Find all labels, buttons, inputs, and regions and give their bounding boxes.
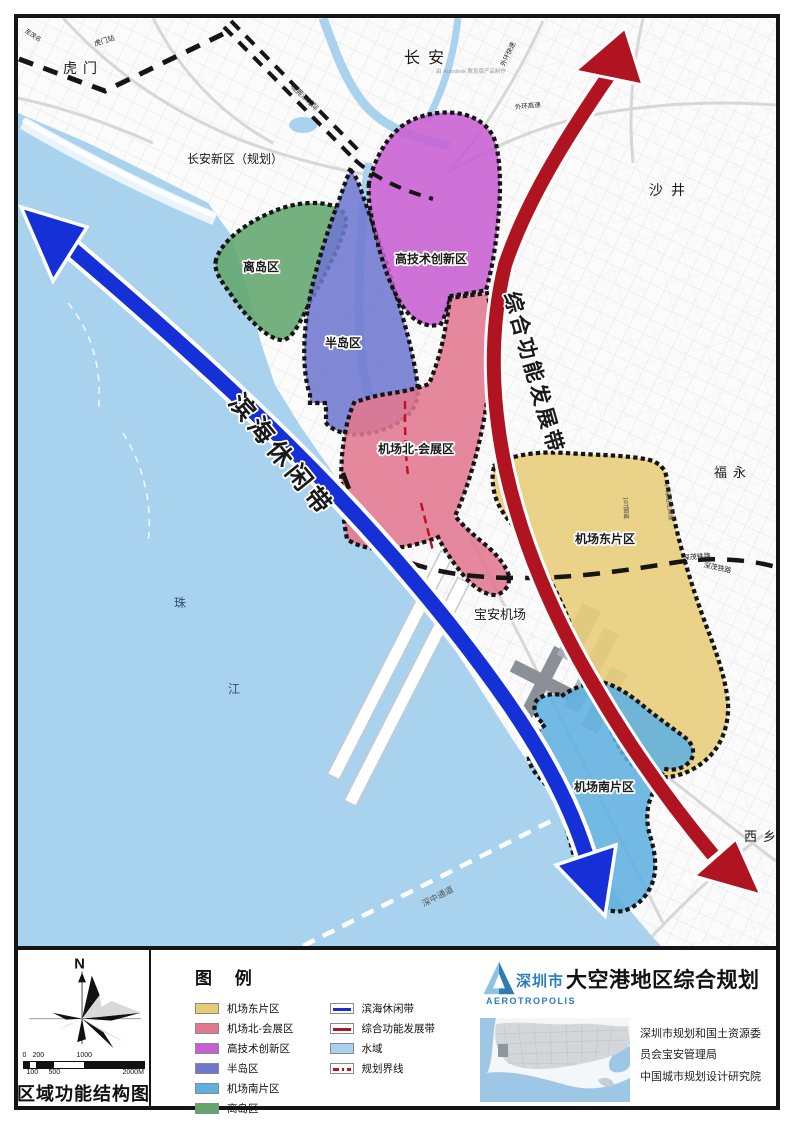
credits: 深圳市规划和国土资源委 员会宝安管理局 中国城市规划设计研究院	[640, 1018, 761, 1102]
logo-latin: AEROTROPOLIS	[486, 996, 576, 1006]
scale-tick: 2000M	[123, 1069, 144, 1076]
scale-tick: 100	[27, 1069, 39, 1076]
credit-line: 员会宝安管理局	[640, 1045, 761, 1066]
legend-line-column: 滨海休闲带综合功能发展带水域规划界线	[330, 1001, 436, 1116]
legend-swatch	[330, 1023, 354, 1034]
legend-label: 离岛区	[227, 1101, 259, 1116]
logo: 深圳市 AEROTROPOLIS 大空港地区综合规划	[480, 960, 776, 1012]
legend-item: 半岛区	[195, 1061, 294, 1076]
map-canvas: 长安由 Autodesk 教育版产品制作虎门虎门站至茂名穗莞深城际长安新区（规划…	[18, 18, 776, 946]
compass-rose: N	[17, 954, 150, 1050]
compass-petals	[53, 976, 141, 1048]
legend-item: 综合功能发展带	[330, 1021, 436, 1036]
inset-highlight-area	[498, 1044, 508, 1057]
legend-item: 机场北-会展区	[195, 1021, 294, 1036]
scale-tick: 1000	[77, 1052, 93, 1059]
legend-label: 规划界线	[362, 1061, 404, 1076]
legend-label: 机场南片区	[227, 1081, 280, 1096]
map-label-autodesk-note: 由 Autodesk 教育版产品制作	[436, 67, 506, 75]
legend-swatch	[330, 1043, 354, 1054]
aerotropolis-logo-icon	[482, 960, 516, 996]
legend-label: 半岛区	[227, 1061, 259, 1076]
map-label-baoan-airport: 宝安机场	[474, 607, 526, 622]
legend-swatch	[330, 1003, 354, 1014]
logo-city: 深圳市	[516, 970, 564, 991]
legend: 图 例 机场东片区机场北-会展区高技术创新区半岛区机场南片区离岛区 滨海休闲带综…	[151, 950, 480, 1106]
plan-sheet: 长安由 Autodesk 教育版产品制作虎门虎门站至茂名穗莞深城际长安新区（规划…	[14, 14, 780, 1110]
map-label-fuyong: 福永	[714, 465, 752, 480]
map-label-xixiang: 西乡	[744, 829, 776, 844]
legend-label: 机场北-会展区	[227, 1021, 294, 1036]
branding-block: 深圳市 AEROTROPOLIS 大空港地区综合规划	[480, 950, 776, 1106]
inset-map	[480, 1018, 630, 1102]
page: { "colors": { "water": "#a8d2ee", "land"…	[0, 0, 800, 1130]
logo-title: 大空港地区综合规划	[566, 964, 760, 994]
legend-label: 机场东片区	[227, 1001, 280, 1016]
map-label-zone-airport-south: 机场南片区	[574, 779, 634, 794]
map-label-zone-island: 离岛区	[243, 259, 279, 274]
map-label-zone-peninsula: 半岛区	[325, 335, 361, 350]
legend-swatch	[195, 1063, 219, 1074]
legend-swatch	[330, 1063, 354, 1074]
map-label-changan-new-area: 长安新区（规划）	[187, 151, 283, 166]
legend-swatch	[195, 1003, 219, 1014]
legend-item: 离岛区	[195, 1101, 294, 1116]
scale-bar-segments	[23, 1061, 145, 1069]
map-label-humen: 虎门	[63, 60, 103, 76]
legend-item: 高技术创新区	[195, 1041, 294, 1056]
map-label-zone-airport-east: 机场东片区	[575, 531, 635, 546]
map-label-shajing: 沙井	[649, 182, 693, 198]
legend-item: 机场东片区	[195, 1001, 294, 1016]
legend-swatch	[195, 1043, 219, 1054]
scale-tick: 500	[49, 1069, 61, 1076]
map-label-zone-hightech: 高技术创新区	[395, 251, 467, 266]
legend-zone-column: 机场东片区机场北-会展区高技术创新区半岛区机场南片区离岛区	[195, 1001, 294, 1116]
bottom-panel: N 0 200 1000	[18, 950, 776, 1106]
north-label: N	[74, 957, 85, 973]
credit-line: 中国城市规划设计研究院	[640, 1067, 761, 1088]
map: 长安由 Autodesk 教育版产品制作虎门虎门站至茂名穗莞深城际长安新区（规划…	[18, 18, 776, 950]
legend-label: 滨海休闲带	[362, 1001, 415, 1016]
credit-line: 深圳市规划和国土资源委	[640, 1024, 761, 1045]
scale-bar: 0 200 1000 100 500 2000M	[23, 1052, 145, 1078]
legend-title: 图 例	[195, 964, 480, 989]
legend-label: 水域	[362, 1041, 383, 1056]
map-label-zhu: 珠	[174, 596, 186, 610]
scale-tick: 200	[33, 1052, 45, 1059]
legend-item: 水域	[330, 1041, 436, 1056]
map-label-jiang: 江	[228, 682, 240, 696]
map-title: 区域功能结构图	[17, 1080, 150, 1106]
legend-item: 机场南片区	[195, 1081, 294, 1096]
legend-swatch	[195, 1103, 219, 1114]
map-label-changan: 长安	[404, 49, 452, 67]
title-block: N 0 200 1000	[18, 950, 151, 1106]
legend-label: 综合功能发展带	[362, 1021, 436, 1036]
legend-item: 滨海休闲带	[330, 1001, 436, 1016]
legend-item: 规划界线	[330, 1061, 436, 1076]
legend-label: 高技术创新区	[227, 1041, 290, 1056]
legend-swatch	[195, 1023, 219, 1034]
legend-swatch	[195, 1083, 219, 1094]
scale-tick: 0	[23, 1052, 27, 1059]
map-label-zone-airport-north: 机场北-会展区	[378, 441, 454, 456]
